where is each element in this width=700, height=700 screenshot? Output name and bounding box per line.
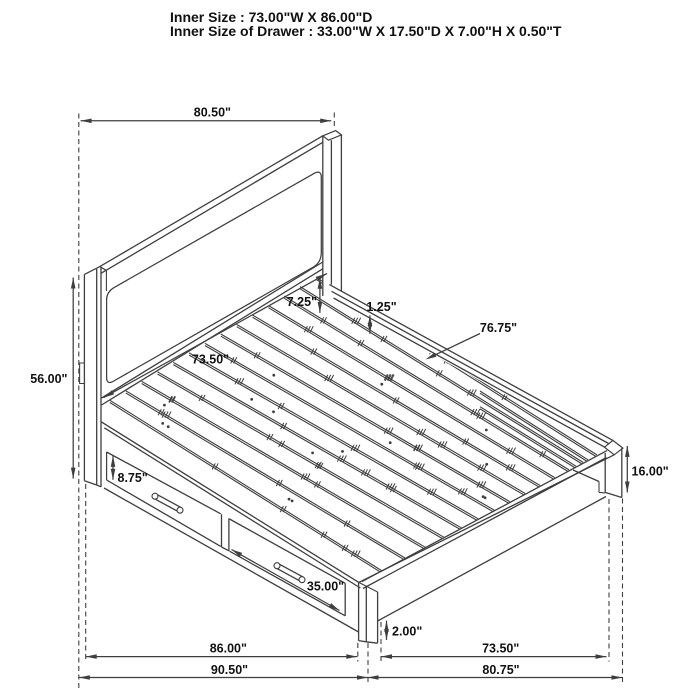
svg-text:35.00": 35.00"	[307, 579, 344, 593]
svg-text:90.50": 90.50"	[211, 663, 248, 677]
svg-text:56.00": 56.00"	[30, 372, 67, 386]
svg-text:80.75": 80.75"	[482, 663, 519, 677]
svg-text:73.50": 73.50"	[482, 642, 519, 656]
svg-text:1.25": 1.25"	[366, 300, 396, 314]
svg-text:76.75": 76.75"	[480, 321, 517, 335]
svg-text:16.00": 16.00"	[632, 465, 669, 479]
svg-text:8.75": 8.75"	[118, 471, 148, 485]
svg-text:2.00": 2.00"	[392, 625, 422, 639]
svg-text:73.50": 73.50"	[192, 352, 229, 366]
svg-text:86.00": 86.00"	[210, 642, 247, 656]
svg-text:7.25": 7.25"	[287, 295, 317, 309]
svg-text:80.50": 80.50"	[194, 105, 231, 119]
